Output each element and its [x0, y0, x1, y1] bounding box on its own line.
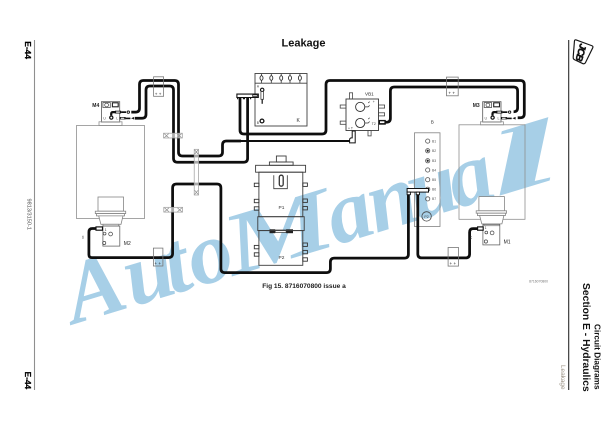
svg-text:B1: B1: [432, 139, 436, 143]
svg-text:B: B: [431, 119, 434, 124]
svg-text:P1: P1: [279, 205, 285, 211]
svg-text:T2: T2: [372, 122, 376, 126]
svg-text:E-44: E-44: [23, 372, 33, 390]
svg-text:B5: B5: [432, 178, 436, 182]
svg-text:8716070800: 8716070800: [529, 280, 548, 284]
svg-text:U: U: [103, 116, 106, 120]
svg-text:B6: B6: [432, 188, 436, 192]
svg-text:Fig 15. 8716070800 issue a: Fig 15. 8716070800 issue a: [262, 283, 346, 290]
svg-text:L: L: [116, 116, 118, 120]
svg-text:+ +: + +: [155, 91, 162, 96]
svg-text:Leakage: Leakage: [559, 365, 566, 390]
svg-text:1: 1: [485, 226, 487, 230]
svg-text:P2: P2: [279, 255, 285, 261]
svg-text:B: B: [257, 121, 259, 125]
svg-text:9813/3150-1: 9813/3150-1: [25, 199, 31, 230]
svg-text:Circuit Diagrams: Circuit Diagrams: [592, 324, 601, 390]
svg-text:16: 16: [81, 235, 85, 239]
svg-text:B7: B7: [432, 197, 436, 201]
svg-text:Section E - Hydraulics: Section E - Hydraulics: [580, 283, 591, 392]
svg-text:B2: B2: [432, 149, 436, 153]
svg-text:E-44: E-44: [23, 41, 33, 59]
svg-text:16: 16: [469, 236, 473, 240]
svg-text:M3: M3: [473, 103, 480, 109]
svg-text:+ +: + +: [448, 90, 455, 95]
svg-text:M4: M4: [92, 103, 99, 109]
svg-text:VB1: VB1: [365, 92, 374, 97]
svg-text:1: 1: [105, 228, 107, 232]
svg-text:+ T: + T: [348, 126, 353, 130]
svg-text:+: +: [373, 100, 375, 104]
svg-text:B3: B3: [432, 159, 436, 163]
svg-text:P2: P2: [424, 215, 428, 219]
svg-text:+ +: + +: [450, 261, 457, 266]
svg-text:M1: M1: [504, 240, 511, 246]
svg-text:B4: B4: [432, 168, 436, 172]
svg-text:M2: M2: [124, 241, 131, 247]
svg-text:Leakage: Leakage: [281, 38, 325, 50]
svg-text:+ +: + +: [154, 261, 161, 266]
